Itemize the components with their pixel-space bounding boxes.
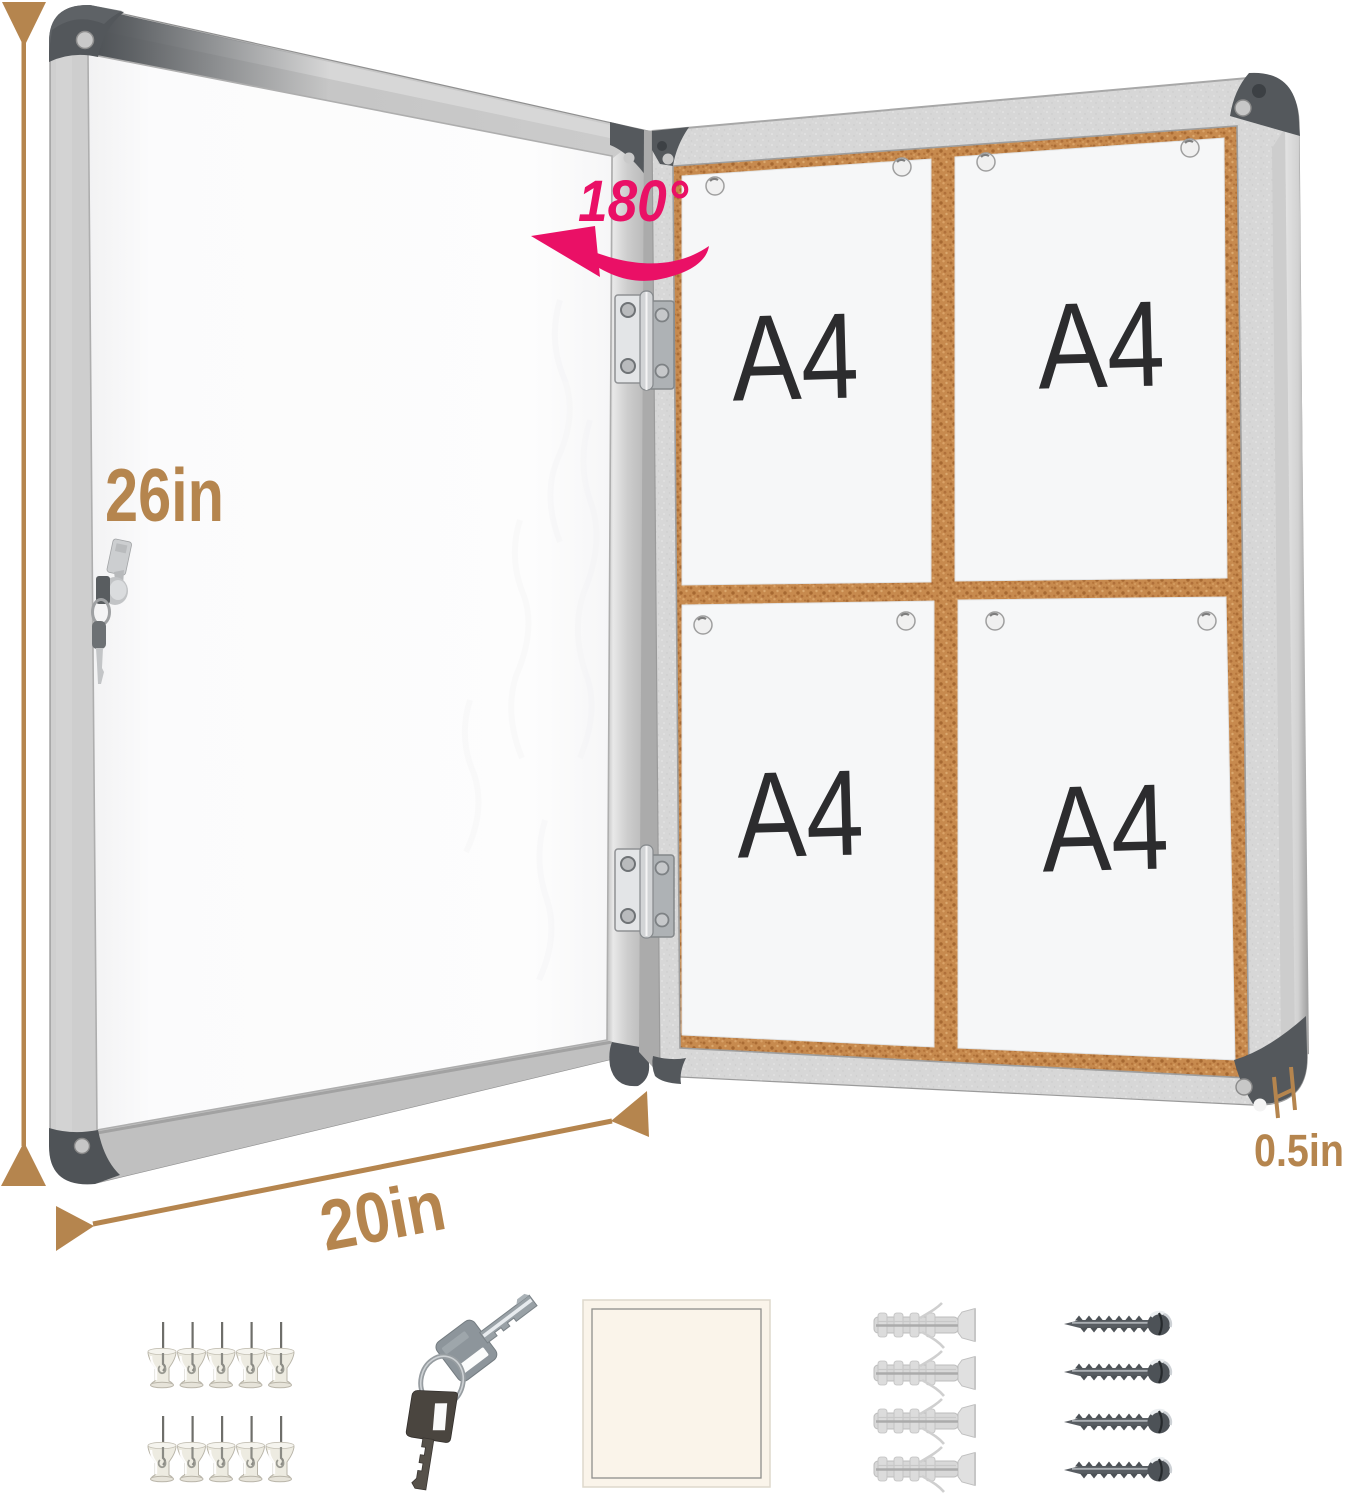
svg-text:26in: 26in <box>105 453 224 537</box>
svg-text:A4: A4 <box>730 287 861 426</box>
svg-text:0.5in: 0.5in <box>1254 1125 1344 1176</box>
svg-text:A4: A4 <box>1040 758 1171 897</box>
svg-text:A4: A4 <box>1036 275 1167 414</box>
svg-text:180°: 180° <box>578 169 689 234</box>
svg-text:A4: A4 <box>735 744 866 883</box>
